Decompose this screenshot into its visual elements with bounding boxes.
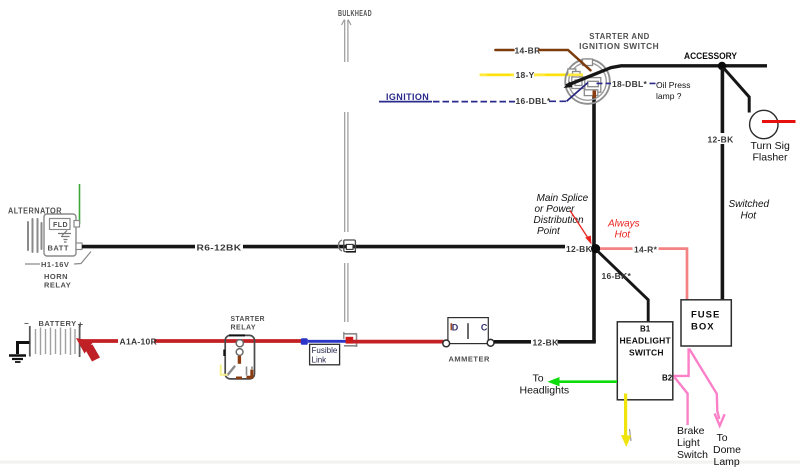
svg-text:Point: Point	[537, 226, 561, 237]
svg-text:Flasher: Flasher	[753, 152, 789, 164]
svg-text:+: +	[78, 320, 84, 331]
svg-text:STARTER AND: STARTER AND	[589, 32, 650, 41]
svg-text:Headlights: Headlights	[520, 385, 570, 397]
svg-text:BATTERY: BATTERY	[39, 319, 77, 328]
svg-text:Always: Always	[607, 219, 640, 230]
svg-text:To: To	[533, 373, 544, 385]
svg-text:−: −	[24, 319, 29, 328]
svg-text:RELAY: RELAY	[44, 281, 71, 290]
svg-text:A1A-10R: A1A-10R	[120, 337, 158, 347]
svg-text:FLD: FLD	[53, 222, 68, 229]
svg-text:R6-12BK: R6-12BK	[197, 243, 243, 253]
svg-text:Main Splice: Main Splice	[537, 193, 589, 204]
svg-text:D: D	[452, 322, 459, 332]
svg-text:B1: B1	[640, 325, 651, 334]
svg-text:16-DBL*: 16-DBL*	[516, 96, 552, 106]
svg-text:14-R*: 14-R*	[634, 245, 658, 255]
svg-text:Turn Sig: Turn Sig	[751, 140, 790, 152]
svg-text:18-DBL*: 18-DBL*	[612, 79, 648, 89]
svg-text:12-BK: 12-BK	[533, 338, 560, 348]
svg-text:B2: B2	[662, 374, 673, 383]
svg-text:12-BK: 12-BK	[566, 244, 593, 254]
svg-text:Hot: Hot	[615, 230, 632, 241]
svg-text:IGNITION: IGNITION	[386, 92, 429, 102]
svg-text:Switched: Switched	[729, 199, 770, 210]
svg-text:H1-16V: H1-16V	[41, 260, 69, 269]
svg-text:14-BR: 14-BR	[515, 46, 541, 56]
svg-text:BOX: BOX	[691, 322, 715, 333]
svg-text:AMMETER: AMMETER	[449, 355, 490, 364]
svg-text:Link: Link	[312, 356, 328, 365]
svg-text:IGNITION SWITCH: IGNITION SWITCH	[579, 42, 659, 51]
svg-text:Brake: Brake	[677, 425, 705, 437]
svg-text:or Power: or Power	[535, 204, 576, 215]
svg-text:BATT: BATT	[48, 244, 69, 253]
svg-text:To: To	[717, 432, 728, 444]
svg-text:Oil Press: Oil Press	[656, 80, 690, 90]
svg-text:lamp ?: lamp ?	[656, 91, 682, 101]
svg-text:BULKHEAD: BULKHEAD	[338, 9, 372, 18]
svg-text:FUSE: FUSE	[691, 310, 720, 321]
svg-text:18-Y: 18-Y	[516, 70, 535, 80]
svg-text:SWITCH: SWITCH	[629, 348, 664, 358]
svg-text:Light: Light	[677, 437, 700, 449]
svg-text:HEADLIGHT: HEADLIGHT	[620, 336, 672, 346]
svg-text:Dome: Dome	[713, 444, 741, 456]
svg-text:12-BK: 12-BK	[708, 135, 735, 145]
svg-text:16-BK*: 16-BK*	[602, 271, 632, 281]
svg-text:Hot: Hot	[741, 211, 758, 222]
svg-text:Switch: Switch	[677, 449, 708, 461]
svg-text:C: C	[481, 322, 488, 332]
svg-text:ACCESSORY: ACCESSORY	[684, 51, 737, 61]
svg-text:RELAY: RELAY	[231, 323, 257, 332]
svg-text:Lamp: Lamp	[714, 456, 740, 468]
svg-text:Fusible: Fusible	[312, 346, 338, 355]
